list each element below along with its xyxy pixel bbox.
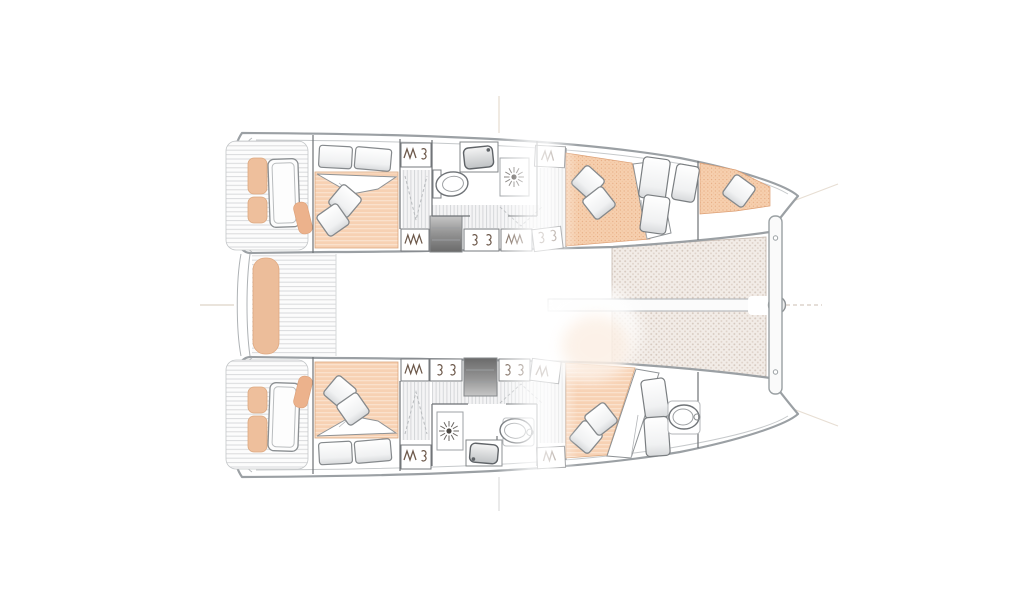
companionway-steps-top <box>430 216 462 252</box>
bow-crossbeam <box>769 216 782 394</box>
bed-pillow <box>354 146 392 171</box>
berth-cushion <box>639 194 670 234</box>
sink-icon <box>463 145 494 169</box>
bed-pillow <box>318 145 352 169</box>
beam-bolt <box>773 370 777 374</box>
transom-top <box>226 141 314 250</box>
catamaran-floorplan-drawing <box>0 0 1024 600</box>
bed-pillow <box>318 441 352 465</box>
helm-seat-cushion <box>248 197 267 223</box>
transom-bottom <box>226 360 314 469</box>
toilet-icon <box>669 405 700 429</box>
cockpit <box>237 254 336 356</box>
helm-seat-cushion <box>248 158 267 194</box>
shelf-locker <box>430 359 462 381</box>
sink-icon <box>469 443 499 464</box>
peach-glow <box>562 316 630 376</box>
berth-cushion <box>638 156 670 200</box>
berth-cushion <box>644 416 671 457</box>
beam-bolt <box>773 236 777 240</box>
helm-seat-cushion <box>248 387 267 413</box>
floorplan-canvas <box>0 0 1024 600</box>
companionway-steps-bottom <box>464 358 497 396</box>
helm-seat-cushion <box>248 416 267 452</box>
bed-pillow <box>354 438 392 463</box>
aft-cabin-top <box>313 135 400 253</box>
berth-cushion <box>640 378 669 420</box>
shelf-locker <box>464 229 499 251</box>
cockpit-bench <box>253 258 279 354</box>
aft-cabin-bottom <box>313 357 400 474</box>
aft-crossbeam-lines <box>237 254 250 356</box>
